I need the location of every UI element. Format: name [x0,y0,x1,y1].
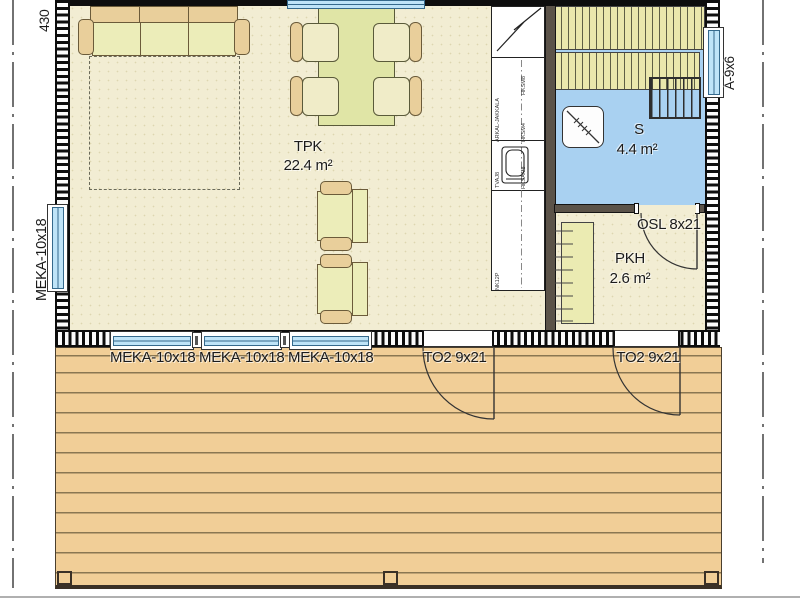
window-bottom-2-glass [204,336,279,346]
kitchen-divider [491,57,545,58]
deck-post [704,571,719,585]
armchair-seat [317,264,353,314]
window-bottom-3-label: MEKA-10x18 [288,349,373,366]
terrace-deck [55,347,722,589]
window-top [287,0,425,9]
page-border-line [0,596,800,598]
sauna-bench-upper [553,6,705,50]
armchair-armrest [320,310,352,324]
sauna-door-opening [639,205,696,213]
window-right-frame [703,27,724,98]
room-label-sauna: S [615,121,663,138]
floor-plan: 430 MEKA-10x18 A-9x6 TPK 22.4 m² S 4.4 m… [0,0,800,600]
terrace-door-right-label: TO2 9x21 [610,349,686,366]
armchair-armrest [320,237,352,251]
kitchen-code-upper-1: HKSM8 [521,65,527,95]
window-bottom-2-frame [201,331,282,350]
interior-wall-sauna-pkh [554,204,638,213]
kitchen-code-sink-right: HKSAM8 [521,155,527,189]
window-right-label: A-9x6 [722,38,737,90]
sauna-door-label: OSL 8x21 [637,216,701,233]
room-area-pkh: 2.6 m² [598,270,662,287]
dimension-label-430: 430 [36,2,52,32]
deck-post [57,571,72,585]
sofa-armrest-right [234,19,250,55]
chair-seat [302,23,339,62]
sofa-backrest [90,6,238,23]
window-left-label: MEKA-10x18 [34,197,50,301]
armchair-armrest [320,181,352,195]
sauna-bench-steps [649,77,701,119]
sofa-armrest-left [78,19,94,55]
window-right-glass [708,30,720,95]
window-mullion [192,332,202,348]
window-bottom-3-glass [292,336,369,346]
room-area-tpk: 22.4 m² [272,157,344,174]
chair-back [409,76,422,116]
window-mullion [280,332,290,348]
kitchen-divider [491,190,545,191]
kitchen-code-upper-2: HKSM4 [521,112,527,142]
chair-seat [373,23,410,62]
window-left-frame [47,204,68,292]
room-label-pkh: PKH [602,250,658,267]
kitchen-code-sink-left: TVAJ8 [495,162,501,188]
sofa-bed-extension-outline [89,56,240,190]
window-bottom-1-label: MEKA-10x18 [110,349,195,366]
sauna-stove [562,106,604,148]
window-bottom-1-frame [110,331,194,350]
kitchen-code-tall-cabinet: ARKAL-JAKKALA [495,84,501,142]
window-left-glass [52,207,64,289]
armchair-armrest [320,254,352,268]
terrace-door-right-opening [613,330,680,347]
chair-seat [373,77,410,116]
armchair-seat [317,191,353,241]
armchair-backrest [352,262,368,316]
terrace-door-left-label: TO2 9x21 [417,349,493,366]
chair-back [409,22,422,62]
exterior-wall-left [55,0,70,347]
interior-wall-vertical [545,4,556,332]
armchair-backrest [352,189,368,243]
chair-seat [302,77,339,116]
pkh-bench [561,222,594,324]
window-bottom-3-frame [289,331,372,350]
sofa-seats [92,22,236,56]
terrace-door-left-opening [422,330,494,347]
deck-post [383,571,398,585]
window-bottom-2-label: MEKA-10x18 [199,349,284,366]
kitchen-counter-run [491,6,545,291]
kitchen-code-worktop: NK12P [495,262,501,290]
room-area-sauna: 4.4 m² [606,141,668,158]
window-bottom-1-glass [113,336,191,346]
room-label-tpk: TPK [282,138,334,155]
